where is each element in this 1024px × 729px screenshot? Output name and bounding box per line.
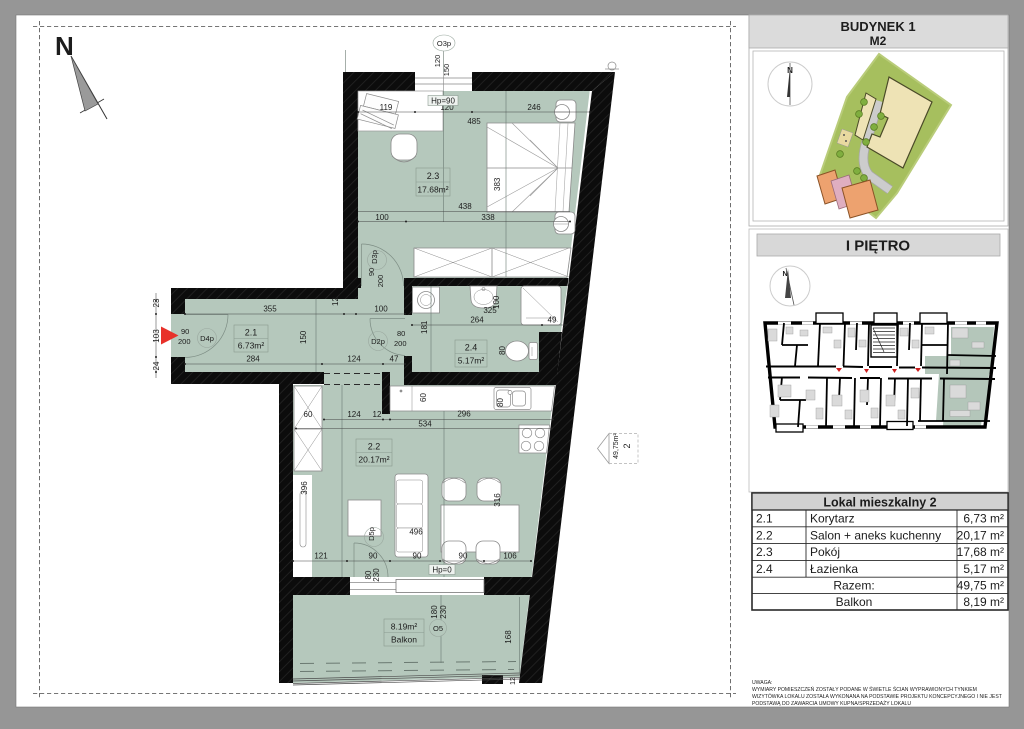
svg-text:230: 230	[439, 605, 448, 619]
svg-text:47: 47	[390, 355, 399, 364]
svg-text:90: 90	[413, 552, 422, 561]
svg-text:200: 200	[178, 337, 191, 346]
svg-text:496: 496	[409, 528, 423, 537]
svg-text:80: 80	[498, 346, 507, 355]
svg-text:355: 355	[263, 305, 277, 314]
svg-text:Balkon: Balkon	[836, 595, 873, 609]
svg-text:8.19m²: 8.19m²	[391, 622, 418, 632]
svg-text:2.2: 2.2	[368, 442, 381, 452]
svg-text:Pokój: Pokój	[810, 545, 840, 559]
svg-text:100: 100	[374, 305, 388, 314]
svg-text:Lokal mieszkalny 2: Lokal mieszkalny 2	[823, 496, 936, 510]
svg-text:168: 168	[504, 630, 513, 644]
svg-text:Razem:: Razem:	[833, 578, 874, 592]
svg-text:100: 100	[492, 295, 501, 309]
svg-text:230: 230	[372, 568, 381, 582]
svg-text:296: 296	[457, 410, 471, 419]
svg-text:24: 24	[152, 361, 161, 370]
svg-text:PODSTAWĄ DO ZAWARCIA UMOWY KUP: PODSTAWĄ DO ZAWARCIA UMOWY KUPNA/SPRZEDA…	[752, 700, 911, 707]
svg-text:200: 200	[394, 339, 407, 348]
svg-text:90: 90	[181, 327, 189, 336]
svg-text:2: 2	[622, 443, 632, 448]
svg-text:O5: O5	[433, 624, 443, 633]
svg-text:20,17 m²: 20,17 m²	[957, 528, 1004, 542]
svg-text:2.4: 2.4	[756, 562, 773, 576]
svg-text:119: 119	[380, 103, 393, 112]
svg-text:485: 485	[467, 117, 481, 126]
svg-text:I PIĘTRO: I PIĘTRO	[846, 238, 911, 255]
svg-text:O3p: O3p	[437, 39, 451, 48]
svg-text:121: 121	[314, 552, 328, 561]
svg-text:2.1: 2.1	[245, 328, 258, 338]
svg-text:80: 80	[397, 329, 405, 338]
svg-text:2.2: 2.2	[756, 528, 773, 542]
svg-text:WYMIARY POMIESZCZEŃ ZOSTAŁY PO: WYMIARY POMIESZCZEŃ ZOSTAŁY PODANE W ŚWI…	[752, 685, 977, 693]
svg-text:106: 106	[503, 552, 517, 561]
svg-text:8,19 m²: 8,19 m²	[963, 595, 1004, 609]
svg-text:180: 180	[430, 605, 439, 619]
svg-text:103: 103	[152, 329, 161, 343]
svg-text:D4p: D4p	[200, 334, 214, 343]
svg-text:338: 338	[481, 213, 495, 222]
svg-text:UWAGA:: UWAGA:	[752, 680, 772, 686]
svg-text:BUDYNEK 1: BUDYNEK 1	[840, 19, 915, 34]
svg-text:120: 120	[433, 55, 442, 68]
svg-text:2.4: 2.4	[465, 343, 478, 353]
svg-text:49: 49	[548, 316, 557, 325]
svg-text:Balkon: Balkon	[391, 635, 417, 645]
svg-text:90: 90	[369, 552, 378, 561]
svg-text:60: 60	[304, 410, 313, 419]
svg-text:49,75 m²: 49,75 m²	[957, 578, 1004, 592]
svg-text:D5p: D5p	[367, 527, 376, 541]
svg-text:150: 150	[299, 330, 308, 344]
svg-text:6.73m²: 6.73m²	[238, 341, 265, 351]
svg-text:6,73 m²: 6,73 m²	[963, 512, 1004, 526]
svg-text:WIZYTÓWKA LOKALU ZOSTAŁA WYKON: WIZYTÓWKA LOKALU ZOSTAŁA WYKONANA NA POD…	[752, 693, 1002, 700]
svg-text:17,68 m²: 17,68 m²	[957, 545, 1004, 559]
svg-text:90: 90	[459, 552, 468, 561]
svg-text:2.3: 2.3	[756, 545, 773, 559]
svg-text:246: 246	[527, 103, 541, 112]
svg-text:534: 534	[418, 420, 432, 429]
svg-text:12: 12	[373, 410, 382, 419]
svg-text:12: 12	[331, 297, 340, 306]
svg-text:5.17m²: 5.17m²	[458, 356, 485, 366]
svg-text:49,75m²: 49,75m²	[613, 432, 620, 458]
svg-text:Hp=90: Hp=90	[431, 97, 455, 106]
svg-text:200: 200	[376, 275, 385, 288]
svg-text:438: 438	[458, 202, 472, 211]
svg-text:100: 100	[375, 213, 389, 222]
svg-text:Hp=0: Hp=0	[432, 566, 452, 575]
svg-text:M2: M2	[870, 34, 887, 48]
svg-text:20.17m²: 20.17m²	[358, 455, 389, 465]
svg-text:60: 60	[419, 393, 428, 402]
svg-text:17.68m²: 17.68m²	[417, 185, 448, 195]
svg-text:23: 23	[152, 298, 161, 307]
svg-text:383: 383	[493, 177, 502, 191]
svg-text:124: 124	[347, 410, 361, 419]
svg-text:5,17 m²: 5,17 m²	[963, 562, 1004, 576]
svg-text:2.1: 2.1	[756, 512, 773, 526]
svg-text:Korytarz: Korytarz	[810, 512, 855, 526]
svg-text:124: 124	[347, 355, 361, 364]
svg-text:12: 12	[510, 677, 517, 685]
svg-text:264: 264	[470, 316, 484, 325]
svg-text:90: 90	[367, 268, 376, 276]
svg-text:2.3: 2.3	[427, 171, 440, 181]
svg-text:D2p: D2p	[371, 337, 385, 346]
svg-text:Salon + aneks kuchenny: Salon + aneks kuchenny	[810, 528, 941, 542]
svg-text:316: 316	[493, 493, 502, 507]
svg-text:396: 396	[300, 481, 309, 495]
svg-text:D3p: D3p	[370, 250, 379, 264]
svg-text:284: 284	[246, 355, 260, 364]
svg-text:80: 80	[496, 398, 505, 407]
svg-text:150: 150	[442, 64, 451, 77]
svg-text:181: 181	[420, 320, 429, 334]
svg-text:Łazienka: Łazienka	[810, 562, 858, 576]
